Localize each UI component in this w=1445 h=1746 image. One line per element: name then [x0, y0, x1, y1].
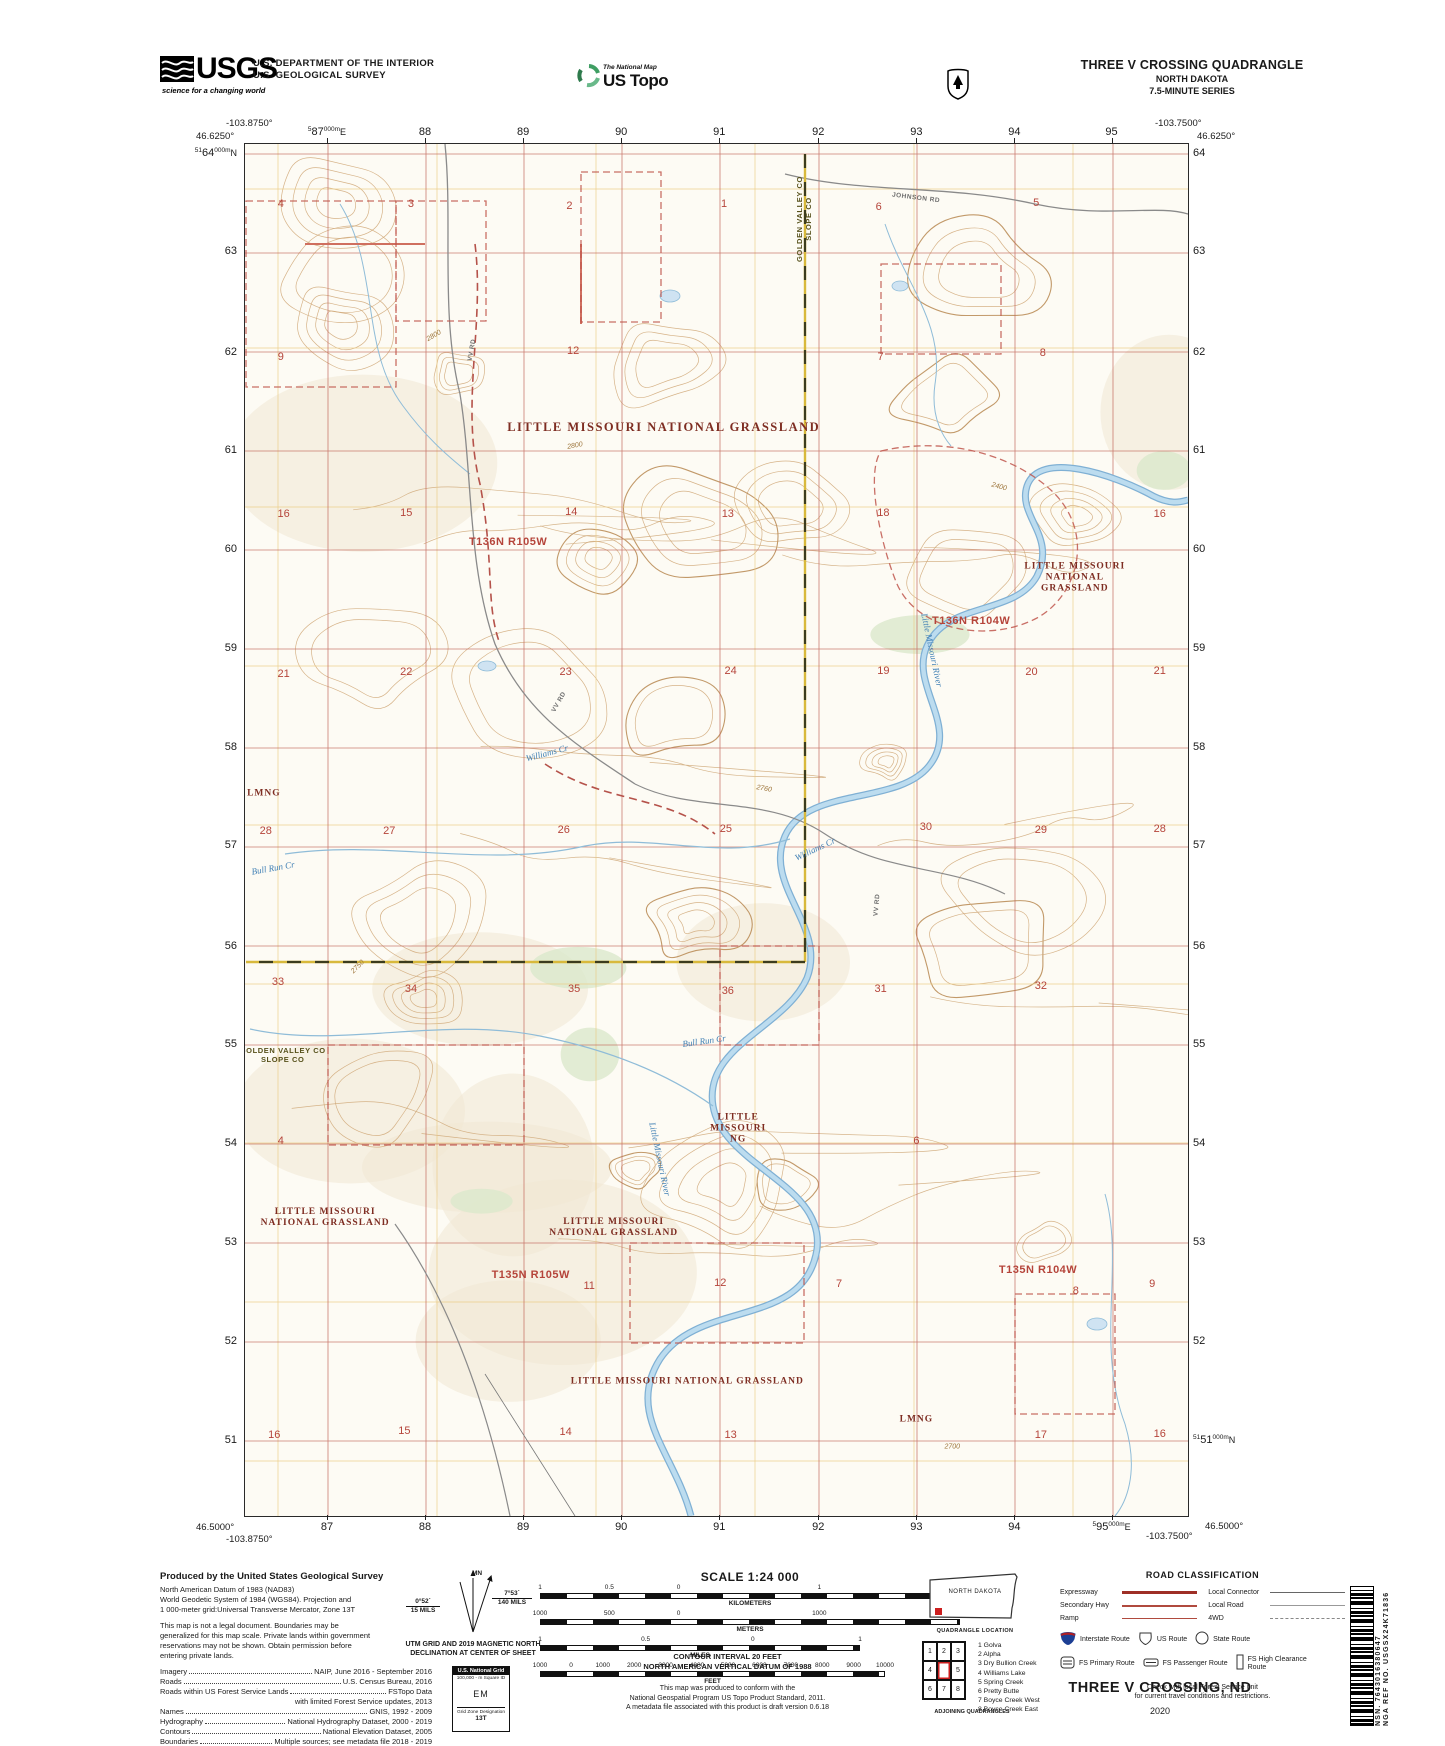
- contour-label: 2760: [755, 784, 772, 794]
- road-lines-left: ExpresswaySecondary HwyRamp: [1060, 1586, 1197, 1625]
- scale-ticks: 10.5012: [540, 1584, 960, 1593]
- shield-item: FS Passenger Route: [1143, 1654, 1228, 1673]
- county-label: GOLDEN VALLEY COSLOPE CO: [245, 1046, 326, 1064]
- grid-tick: [523, 1515, 524, 1520]
- section-number: 13: [722, 508, 734, 520]
- ustopo-text: The National Map US Topo: [603, 64, 668, 91]
- grid-label-top: 91: [713, 126, 725, 138]
- shield-item: State Route: [1195, 1631, 1250, 1648]
- contour-label: 2700: [944, 1444, 960, 1451]
- expressway-line-sample: [1122, 1591, 1197, 1594]
- township-label: T135N R105W: [492, 1269, 570, 1281]
- grid-label-right: 60: [1193, 543, 1205, 555]
- section-number: 16: [1154, 508, 1166, 520]
- section-number: 27: [383, 825, 395, 837]
- grid-tick: [719, 138, 720, 143]
- section-number: 25: [720, 823, 732, 835]
- grid-label-right: 54: [1193, 1137, 1205, 1149]
- usng-subtitle: 100,000 - m Square ID: [453, 1676, 509, 1681]
- magnetic-north-declination: 7°53´ 140 MILS: [492, 1590, 532, 1607]
- vertical-datum-note: NORTH AMERICAN VERTICAL DATUM OF 1988: [555, 1662, 900, 1672]
- grid-tick: [916, 138, 917, 143]
- shield-label: FS High Clearance Route: [1248, 1656, 1318, 1672]
- section-number: 7: [836, 1278, 842, 1290]
- section-number: 20: [1025, 666, 1037, 678]
- section-number: 5: [1033, 197, 1039, 209]
- map-area: LITTLE MISSOURI NATIONAL GRASSLANDLITTLE…: [244, 143, 1189, 1517]
- contour-interval-note: CONTOUR INTERVAL 20 FEET: [555, 1652, 900, 1662]
- grassland-sm-label: LITTLE MISSOURINATIONAL GRASSLAND: [261, 1207, 390, 1229]
- grid-label-top: 90: [615, 126, 627, 138]
- corner-lon-ne: -103.7500°: [1155, 118, 1202, 129]
- state-route-circle: [1195, 1631, 1209, 1648]
- road-lines-right: Local ConnectorLocal Road4WD: [1208, 1586, 1345, 1625]
- grid-tick: [1112, 1515, 1113, 1520]
- road-class-row: Expressway: [1060, 1586, 1197, 1599]
- grassland-sm-label: LITTLE MISSOURI NATIONAL GRASSLAND: [571, 1376, 804, 1387]
- sheet-year: 2020: [1040, 1706, 1280, 1716]
- grid-label-left: 59: [225, 642, 237, 654]
- grassland-sm-label: LITTLEMISSOURING: [710, 1113, 766, 1146]
- adjoining-quad-name: 6 Pretty Butte: [978, 1687, 1040, 1696]
- id-block: NSN. 7643016380647 NGA REF NO. USGSX24K7…: [1350, 1586, 1390, 1726]
- shield-item: FS Primary Route: [1060, 1654, 1135, 1673]
- section-number: 21: [278, 668, 290, 680]
- grid-label-left: 58: [225, 741, 237, 753]
- stream-label: Little Missouri River: [647, 1122, 672, 1197]
- ramp-line-sample: [1122, 1618, 1197, 1619]
- grid-label-bottom: 88: [419, 1521, 431, 1533]
- sheet-title: THREE V CROSSING, ND: [1040, 1680, 1280, 1696]
- shield-item: Interstate Route: [1060, 1631, 1130, 1648]
- section-number: 19: [877, 665, 889, 677]
- quadrangle-location: NORTH DAKOTA QUADRANGLE LOCATION: [920, 1572, 1030, 1634]
- grid-tick: [327, 1515, 328, 1520]
- scale-bar-meters: 1000500010002000METERS: [540, 1610, 960, 1636]
- section-number: 32: [1035, 980, 1047, 992]
- adjoining-quad-name: 7 Boyce Creek West: [978, 1696, 1040, 1705]
- us-route-shield: [1138, 1632, 1153, 1648]
- route-shields-row-1: Interstate RouteUS RouteState Route: [1060, 1631, 1345, 1648]
- connector-line-sample: [1270, 1592, 1345, 1593]
- road-label: VV RD: [550, 691, 567, 714]
- grid-label-left: 55: [225, 1038, 237, 1050]
- grid-label-top: 95: [1105, 126, 1117, 138]
- adjoining-cell: 5: [951, 1661, 965, 1680]
- stream-label: Williams Cr: [525, 743, 569, 764]
- corner-lon-sw: -103.8750°: [226, 1534, 273, 1545]
- grid-label-left: 56: [225, 940, 237, 952]
- adjoining-cell: 3: [951, 1642, 965, 1661]
- quadrangle-location-caption: QUADRANGLE LOCATION: [920, 1628, 1030, 1634]
- fs-passenger-badge: [1143, 1658, 1159, 1670]
- grid-tick: [425, 138, 426, 143]
- section-number: 6: [876, 201, 882, 213]
- township-label: T136N R105W: [469, 536, 547, 548]
- agency-heading: U.S. DEPARTMENT OF THE INTERIOR U.S. GEO…: [253, 58, 434, 82]
- ustopo-logo: The National Map US Topo: [577, 64, 687, 98]
- road-label: VV RD: [872, 894, 881, 917]
- grid-label-left: 63: [225, 245, 237, 257]
- grid-tick: [1014, 1515, 1015, 1520]
- adjoining-cell: 4: [923, 1661, 937, 1680]
- adjoining-quad-name: 5 Spring Creek: [978, 1678, 1040, 1687]
- section-number: 17: [1035, 1429, 1047, 1441]
- secondary-line-sample: [1122, 1605, 1197, 1607]
- map-label-layer: LITTLE MISSOURI NATIONAL GRASSLANDLITTLE…: [245, 144, 1188, 1516]
- grid-label-right: 58: [1193, 741, 1205, 753]
- adjoining-cell: 6: [923, 1680, 937, 1699]
- grid-label-bottom: 595000mE: [1092, 1521, 1130, 1533]
- shield-label: US Route: [1157, 1636, 1187, 1644]
- credit-row: HydrographyNational Hydrography Dataset,…: [160, 1717, 432, 1727]
- township-label: T136N R104W: [932, 615, 1010, 627]
- adjoining-cell: 7: [937, 1680, 951, 1699]
- grid-label-right: 61: [1193, 444, 1205, 456]
- usgs-topo-sheet: USGS science for a changing world U.S. D…: [0, 0, 1445, 1746]
- adjoining-list: 1 Golva2 Alpha3 Dry Bullion Creek4 Willi…: [978, 1641, 1040, 1715]
- grid-label-right: 57: [1193, 839, 1205, 851]
- quad-title: THREE V CROSSING QUADRANGLE: [1042, 58, 1342, 72]
- grid-label-right: 52: [1193, 1335, 1205, 1347]
- grid-label-left: 62: [225, 346, 237, 358]
- road-classification-title: ROAD CLASSIFICATION: [1060, 1570, 1345, 1580]
- usng-title: U.S. National Grid: [453, 1667, 509, 1675]
- section-number: 12: [567, 345, 579, 357]
- grassland-sm-label: LITTLE MISSOURINATIONALGRASSLAND: [1024, 561, 1125, 594]
- section-number: 24: [725, 665, 737, 677]
- quadrangle-heading: THREE V CROSSING QUADRANGLE NORTH DAKOTA…: [1042, 58, 1342, 96]
- fs-high-clearance-badge: [1236, 1654, 1244, 1673]
- road-label: VV RD: [467, 338, 478, 361]
- stream-label: Bull Run Cr: [251, 860, 296, 877]
- shield-item: FS High Clearance Route: [1236, 1654, 1318, 1673]
- map-notes: CONTOUR INTERVAL 20 FEET NORTH AMERICAN …: [555, 1652, 900, 1713]
- contour-label: 2800: [567, 441, 584, 451]
- grassland-sm-label: LITTLE MISSOURINATIONAL GRASSLAND: [549, 1217, 678, 1239]
- grid-north-declination: 0°52´ 15 MILS: [406, 1598, 440, 1615]
- grid-tick: [1112, 138, 1113, 143]
- adjoining-grid: 12345678: [922, 1641, 966, 1700]
- grid-label-bottom: 94: [1008, 1521, 1020, 1533]
- section-number: 15: [398, 1425, 410, 1437]
- road-class-row: Local Road: [1208, 1599, 1345, 1612]
- section-number: 9: [278, 351, 284, 363]
- section-number: 30: [920, 821, 932, 833]
- contour-label: 2400: [991, 482, 1008, 493]
- section-number: 23: [559, 666, 571, 678]
- section-number: 16: [1154, 1428, 1166, 1440]
- grid-label-bottom: 92: [812, 1521, 824, 1533]
- adjoining-cell: 8: [951, 1680, 965, 1699]
- road-class-row: Secondary Hwy: [1060, 1599, 1197, 1612]
- grid-label-left: 53: [225, 1236, 237, 1248]
- section-number: 31: [874, 983, 886, 995]
- corner-lat-nw: 46.6250°: [196, 131, 234, 142]
- grid-label-right: 59: [1193, 642, 1205, 654]
- grid-label-left: 5164000mN: [195, 147, 237, 159]
- grid-tick: [621, 1515, 622, 1520]
- stream-label: Williams Cr: [793, 836, 836, 863]
- stream-label: Bull Run Cr: [682, 1033, 726, 1049]
- grid-label-top: 88: [419, 126, 431, 138]
- corner-lat-sw: 46.5000°: [196, 1522, 234, 1533]
- corner-lon-nw: -103.8750°: [226, 118, 273, 129]
- magnetic-north-label: MN: [472, 1570, 482, 1577]
- township-label: T135N R104W: [999, 1264, 1077, 1276]
- adjoining-quad-name: 2 Alpha: [978, 1650, 1040, 1659]
- grid-label-bottom: 91: [713, 1521, 725, 1533]
- section-number: 8: [1073, 1285, 1079, 1297]
- scale-ticks: 1000500010002000: [540, 1610, 960, 1619]
- road-class-row: Ramp: [1060, 1612, 1197, 1625]
- grid-tick: [327, 138, 328, 143]
- sheet-title-block: THREE V CROSSING, ND 2020: [1040, 1680, 1280, 1716]
- grid-label-bottom: 90: [615, 1521, 627, 1533]
- credit-row: ContoursNational Elevation Dataset, 2005: [160, 1727, 432, 1737]
- agency-line-1: U.S. DEPARTMENT OF THE INTERIOR: [253, 58, 434, 70]
- road-label: JOHNSON RD: [892, 191, 941, 204]
- shield-label: Interstate Route: [1080, 1636, 1130, 1644]
- grid-tick: [818, 1515, 819, 1520]
- credit-row: NamesGNIS, 1992 - 2009: [160, 1707, 432, 1717]
- state-name: NORTH DAKOTA: [927, 1589, 1023, 1595]
- national-map-icon: [577, 64, 601, 88]
- grid-label-bottom: 93: [910, 1521, 922, 1533]
- grid-label-left: 52: [225, 1335, 237, 1347]
- adjoining-caption: ADJOINING QUADRANGLES: [892, 1709, 1052, 1715]
- grassland-sm-label: LMNG: [900, 1414, 934, 1425]
- section-number: 4: [278, 1135, 284, 1147]
- corner-lon-se: -103.7500°: [1146, 1531, 1193, 1542]
- usng-zone: 13T: [453, 1715, 509, 1722]
- fwd-line-sample: [1270, 1618, 1345, 1619]
- declination-caption: UTM GRID AND 2019 MAGNETIC NORTH DECLINA…: [388, 1640, 558, 1658]
- shield-label: FS Primary Route: [1079, 1660, 1135, 1668]
- adjoining-quad-name: 4 Williams Lake: [978, 1669, 1040, 1678]
- grid-label-right: 5151000mN: [1193, 1434, 1235, 1446]
- section-number: 35: [568, 983, 580, 995]
- road-class-row: 4WD: [1208, 1612, 1345, 1625]
- national-map-tagline: The National Map: [603, 64, 668, 71]
- grid-label-left: 61: [225, 444, 237, 456]
- scale-unit: KILOMETERS: [540, 1600, 960, 1607]
- grid-label-right: 53: [1193, 1236, 1205, 1248]
- local-line-sample: [1270, 1605, 1345, 1606]
- section-number: 28: [1154, 823, 1166, 835]
- grid-label-left: 51: [225, 1434, 237, 1446]
- nsn-number: NSN. 7643016380647: [1375, 1586, 1382, 1726]
- adjoining-quad-name: 1 Golva: [978, 1641, 1040, 1650]
- adjoining-cell: [937, 1661, 951, 1680]
- interstate-shield: [1060, 1631, 1076, 1648]
- road-class-row: Local Connector: [1208, 1586, 1345, 1599]
- quadrangle-location-marker: [935, 1608, 942, 1615]
- shield-label: FS Passenger Route: [1163, 1660, 1228, 1668]
- section-number: 1: [721, 198, 727, 210]
- section-number: 15: [400, 507, 412, 519]
- usgs-tagline: science for a changing world: [162, 86, 265, 95]
- grid-label-left: 57: [225, 839, 237, 851]
- scale-bar-graphic: [540, 1645, 860, 1651]
- grassland-sm-label: LMNG: [247, 789, 281, 800]
- scale-ticks: 10.501: [540, 1636, 860, 1645]
- grid-label-bottom: 89: [517, 1521, 529, 1533]
- grid-tick: [523, 138, 524, 143]
- adjoining-quad-name: 3 Dry Bullion Creek: [978, 1659, 1040, 1668]
- grid-label-left: 54: [225, 1137, 237, 1149]
- section-number: 11: [583, 1280, 594, 1292]
- ustopo-brand: US Topo: [603, 71, 668, 91]
- us-national-grid-box: U.S. National Grid 100,000 - m Square ID…: [452, 1666, 510, 1732]
- forest-service-shield-icon: [946, 68, 970, 100]
- section-number: 12: [714, 1277, 726, 1289]
- scale-bar-graphic: [540, 1619, 960, 1625]
- section-number: 22: [400, 666, 412, 678]
- scale-bar-kilometers: 10.5012KILOMETERS: [540, 1584, 960, 1610]
- grid-label-top: 93: [910, 126, 922, 138]
- grassland-label: LITTLE MISSOURI NATIONAL GRASSLAND: [507, 420, 820, 434]
- section-number: 29: [1035, 824, 1047, 836]
- section-number: 36: [722, 985, 734, 997]
- shield-item: US Route: [1138, 1631, 1187, 1648]
- shield-label: State Route: [1213, 1636, 1250, 1644]
- grid-label-right: 62: [1193, 346, 1205, 358]
- grid-tick: [425, 1515, 426, 1520]
- scale-unit: METERS: [540, 1626, 960, 1633]
- grid-tick: [621, 138, 622, 143]
- quad-series: 7.5-MINUTE SERIES: [1042, 86, 1342, 96]
- grid-label-right: 56: [1193, 940, 1205, 952]
- corner-lat-se: 46.5000°: [1205, 1521, 1243, 1532]
- section-number: 14: [565, 506, 577, 518]
- grid-label-right: 55: [1193, 1038, 1205, 1050]
- grid-tick: [916, 1515, 917, 1520]
- section-number: 16: [268, 1429, 280, 1441]
- section-number: 14: [559, 1426, 571, 1438]
- section-number: 18: [877, 507, 889, 519]
- section-number: 28: [260, 825, 272, 837]
- contour-label: 2800: [425, 329, 442, 343]
- county-label: GOLDEN VALLEY COSLOPE CO: [795, 176, 813, 262]
- fs-primary-badge: [1060, 1656, 1075, 1672]
- section-number: 21: [1154, 665, 1166, 677]
- section-number: 13: [725, 1429, 737, 1441]
- grid-label-bottom: 87: [321, 1521, 333, 1533]
- adjoining-cell: 1: [923, 1642, 937, 1661]
- section-number: 4: [278, 198, 284, 210]
- contour-label: 2750: [350, 959, 366, 975]
- grid-label-top: 94: [1008, 126, 1020, 138]
- scale-bar-graphic: [540, 1593, 960, 1599]
- grid-tick: [818, 138, 819, 143]
- section-number: 8: [1040, 347, 1046, 359]
- agency-line-2: U.S. GEOLOGICAL SURVEY: [253, 70, 434, 82]
- adjoining-cell: 2: [937, 1642, 951, 1661]
- section-number: 16: [278, 508, 290, 520]
- nga-ref-number: NGA REF NO. USGSX24K71836: [1383, 1586, 1390, 1726]
- grid-label-top: 587000mE: [308, 126, 346, 138]
- scale-title: SCALE 1:24 000: [540, 1570, 960, 1584]
- grid-label-right: 63: [1193, 245, 1205, 257]
- section-number: 7: [878, 351, 884, 363]
- section-number: 2: [566, 200, 572, 212]
- north-dakota-outline: NORTH DAKOTA: [927, 1572, 1023, 1622]
- grid-label-right: 64: [1193, 147, 1205, 159]
- grid-label-top: 92: [812, 126, 824, 138]
- route-shields-row-2: FS Primary RouteFS Passenger RouteFS Hig…: [1060, 1654, 1345, 1673]
- grid-label-top: 89: [517, 126, 529, 138]
- quad-state: NORTH DAKOTA: [1042, 74, 1342, 84]
- usng-divider: [457, 1707, 505, 1708]
- section-number: 3: [408, 198, 414, 210]
- usng-square-id: EM: [453, 1689, 509, 1699]
- section-number: 9: [1149, 1278, 1155, 1290]
- barcode: [1350, 1586, 1374, 1726]
- grid-tick: [1014, 138, 1015, 143]
- credit-row: BoundariesMultiple sources; see metadata…: [160, 1737, 432, 1746]
- section-number: 26: [558, 824, 570, 836]
- grid-label-left: 60: [225, 543, 237, 555]
- usgs-wave-icon: [160, 56, 194, 86]
- section-number: 34: [405, 983, 417, 995]
- grid-tick: [719, 1515, 720, 1520]
- section-number: 6: [913, 1135, 919, 1147]
- corner-lat-ne: 46.6250°: [1197, 131, 1235, 142]
- section-number: 33: [272, 976, 284, 988]
